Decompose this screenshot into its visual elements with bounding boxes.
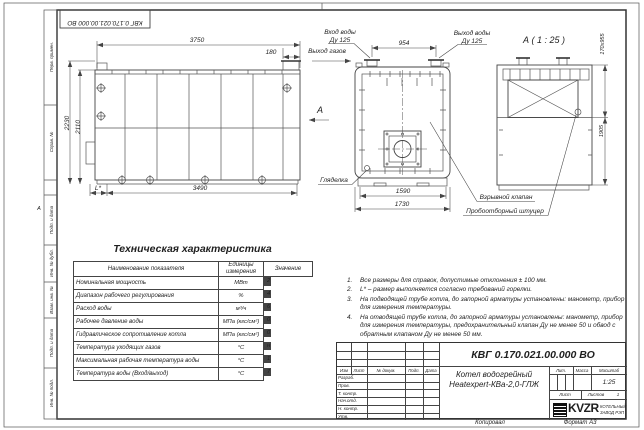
tb-row-tkontr: Т. контр.: [338, 389, 367, 397]
tb-scale-label: Масштаб: [591, 367, 627, 374]
note-item: 3.На подводящей трубе котла, до запорной…: [347, 296, 627, 313]
dim-3750: 3750: [190, 37, 205, 44]
zone-marker: А: [36, 206, 41, 212]
dim-2110: 2110: [75, 120, 82, 135]
section-view: [497, 58, 592, 190]
tb-sheets-value: 1: [611, 390, 625, 399]
dim-1905: 1905: [599, 124, 605, 137]
label-gas-outlet: Выход газов: [308, 47, 346, 55]
label-water-inlet-dn: Ду 125: [329, 37, 351, 44]
row-value: не более 220: [264, 342, 271, 351]
row-value: 115: [264, 355, 271, 364]
label-water-outlet: Выход воды: [454, 29, 491, 37]
row-name: Максимальная рабочая температура воды: [74, 355, 219, 368]
label-water-outlet-dn: Ду 125: [461, 38, 483, 45]
drawing-sheet: А Перв. примен. Справ. № Подп. и дата Ин…: [0, 0, 644, 430]
bolt-symbols: [96, 83, 292, 185]
stamp-label: Подп. и дата: [49, 328, 54, 357]
row-name: Рабочее давление воды: [74, 316, 219, 329]
stamp-label: Инв. № дубл.: [49, 249, 54, 277]
company-name-line1: КОТЕЛЬНЫЙ: [600, 404, 626, 409]
tb-doc-name1: Котел водогрейный: [439, 369, 549, 379]
dim-1730: 1730: [395, 201, 410, 208]
row-name: Номинальная мощность: [74, 277, 219, 290]
notes-list: 1.Все размеры для справок, допустимые от…: [347, 277, 627, 340]
title-block: Изм Лист № докум. Подп. Дата Разраб. Про…: [336, 342, 626, 419]
dim-1590: 1590: [396, 188, 411, 195]
tb-col-docnum: № докум.: [367, 367, 405, 374]
tb-lit-label: Лит.: [549, 367, 573, 374]
dim-954: 954: [399, 40, 410, 47]
tb-col-list: Лист: [351, 367, 367, 374]
row-unit: МПа (кгс/см²): [219, 329, 264, 342]
stamp-label: Перв. примен.: [49, 42, 54, 72]
dim-3490: 3490: [193, 185, 208, 192]
tb-sheets-label: Листов: [581, 390, 611, 399]
tb-row-utv: Утв.: [338, 413, 367, 421]
row-name: Расход воды: [74, 303, 219, 316]
col-header: Единицы измерения: [219, 262, 264, 277]
row-value: 40-100: [264, 290, 271, 299]
label-sampling-fitting: Пробоотборный штуцер: [466, 207, 544, 215]
copied-label: Копировал: [440, 420, 540, 426]
note-text: L* – размер выполняется согласно требова…: [360, 286, 627, 294]
kvzr-logo-icon: [553, 403, 567, 417]
water-nozzles: [356, 60, 449, 67]
note-text: Все размеры для справок, допустимые откл…: [360, 277, 627, 285]
doc-number-top: КВГ 0.170.021.00.000 ВО: [67, 19, 142, 26]
row-unit: МПа (кгс/см²): [219, 316, 264, 329]
tb-doc-name2: Heatexpert-КВа-2,0-ГЛЖ: [439, 379, 549, 389]
stamp-label: Подп. и дата: [49, 205, 54, 234]
tb-doc-number: КВГ 0.170.021.00.000 ВО: [439, 343, 627, 366]
col-header: Значение: [264, 262, 313, 277]
tb-col-podp: Подп.: [405, 367, 423, 374]
row-value: 0,07(0,7): [264, 329, 271, 338]
tb-sheet-label: Лист: [549, 390, 581, 399]
note-number: 1.: [347, 277, 360, 285]
callout-labels: Вход воды Ду 125 Выход воды Ду 125 Выход…: [308, 28, 576, 216]
company-name-line2: ЗАВОД РЭП: [600, 410, 624, 415]
dim-180: 180: [266, 49, 277, 56]
row-unit: %: [219, 290, 264, 303]
row-name: Температура уходящих газов: [74, 342, 219, 355]
tb-row-prov: Пров.: [338, 382, 367, 390]
row-unit: °С: [219, 355, 264, 368]
tb-row-nachotd: Нач.отд.: [338, 397, 367, 405]
row-unit: МВт: [219, 277, 264, 290]
stamp-label: Справ. №: [49, 132, 54, 153]
doc-number-top-box: КВГ 0.170.021.00.000 ВО: [60, 10, 150, 28]
note-item: 1.Все размеры для справок, допустимые от…: [347, 277, 627, 285]
col-header: Наименование показателя: [74, 262, 219, 277]
note-number: 4.: [347, 314, 360, 339]
view-arrow-letter: А: [316, 105, 323, 115]
label-explosion-valve: Взрывной клапан: [480, 193, 533, 201]
row-unit: м³/ч: [219, 303, 264, 316]
row-name: Диапазон рабочего регулирования: [74, 290, 219, 303]
base-frame: [358, 178, 447, 186]
stamp-label: Взам. инв. №: [49, 286, 54, 314]
kvzr-logo-text: KVZR: [568, 401, 599, 415]
row-value: 68: [264, 303, 271, 312]
front-view: [355, 60, 450, 186]
tb-mass-label: Масса: [573, 367, 591, 374]
row-value: 2,0: [264, 277, 271, 286]
note-text: На подводящей трубе котла, до запорной а…: [360, 296, 627, 313]
char-table: Наименование показателя Единицы измерени…: [73, 261, 313, 381]
dim-opening: 170х955: [600, 33, 606, 55]
note-text: На отводящей трубе котла, до запорной ар…: [360, 314, 627, 339]
row-name: Температура воды (Вход/выход): [74, 368, 219, 381]
label-sight-glass: Гляделка: [320, 176, 348, 184]
side-view: [86, 61, 301, 185]
note-number: 3.: [347, 296, 360, 313]
row-value: 0,3(3,0)-0,6(6,0): [264, 316, 271, 325]
section-view-title: А ( 1 : 25 ): [522, 35, 565, 45]
tb-col-data: Дата: [423, 367, 439, 374]
char-table-title: Техническая характеристика: [73, 243, 312, 255]
note-item: 4.На отводящей трубе котла, до запорной …: [347, 314, 627, 339]
sight-glass: [365, 166, 370, 171]
tb-row-nkontr: Н. контр.: [338, 405, 367, 413]
row-name: Гидравлическое сопротивление котла: [74, 329, 219, 342]
dim-2230: 2230: [64, 115, 71, 131]
format-label: Формат А3: [545, 420, 615, 426]
note-number: 2.: [347, 286, 360, 294]
row-value: 70/95: [264, 368, 271, 377]
tb-scale-value: 1:25: [591, 375, 627, 389]
row-unit: °С: [219, 342, 264, 355]
label-water-inlet: Вход воды: [324, 28, 356, 36]
stamp-label: Инв. № подл.: [49, 379, 54, 407]
tb-col-izm: Изм: [337, 367, 351, 374]
stamp-column-labels: Перв. примен. Справ. № Подп. и дата Инв.…: [49, 42, 54, 407]
row-unit: °С: [219, 368, 264, 381]
tb-row-razrab: Разраб.: [338, 374, 367, 382]
dim-L: L*: [95, 185, 102, 192]
note-item: 2.L* – размер выполняется согласно требо…: [347, 286, 627, 294]
